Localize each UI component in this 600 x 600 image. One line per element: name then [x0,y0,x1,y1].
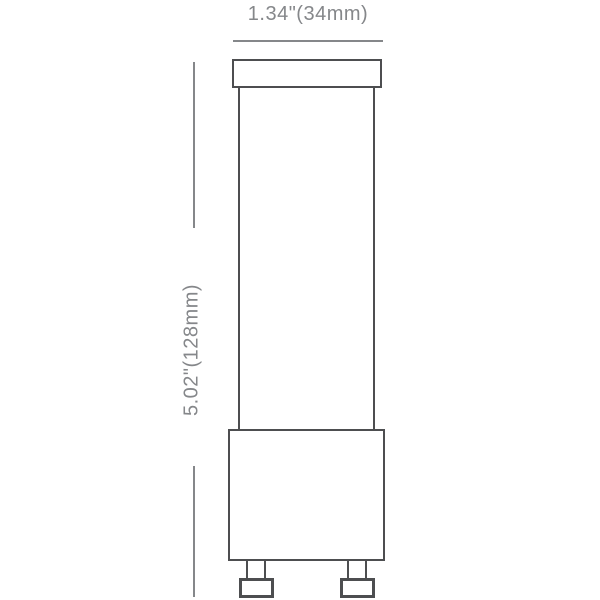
height-dimension-label: 5.02"(128mm) [181,284,204,416]
lamp-base [228,429,385,561]
right-pin-foot [340,578,375,598]
width-dimension-line [233,40,383,42]
height-dimension-line-lower [193,466,195,597]
width-dimension-label: 1.34"(34mm) [226,3,390,26]
left-pin-foot [239,578,274,598]
lamp-tube [238,87,375,429]
lamp-top-cap [232,59,382,88]
height-dimension-line-upper [193,62,195,228]
dimension-diagram: 1.34"(34mm) 5.02"(128mm) [0,0,600,600]
right-pin-neck [347,561,367,579]
left-pin-neck [246,561,266,579]
